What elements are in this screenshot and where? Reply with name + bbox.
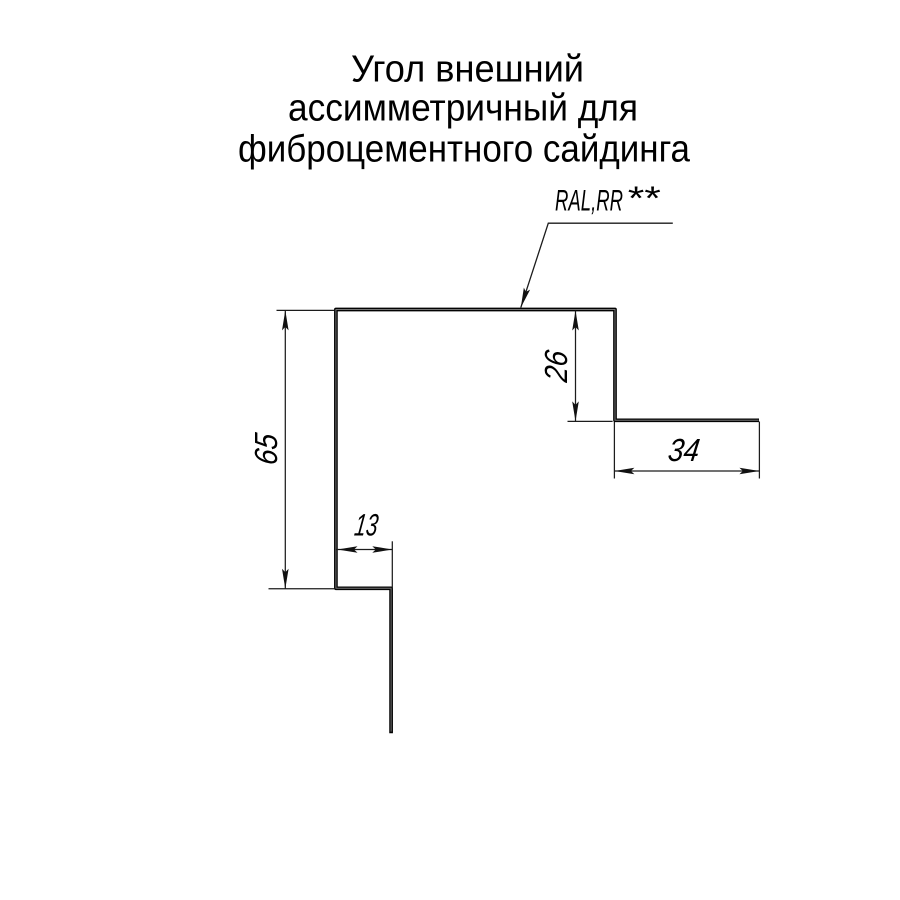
svg-text:34: 34 — [666, 432, 702, 468]
svg-text:26: 26 — [538, 348, 574, 385]
svg-text:фиброцементного сайдинга: фиброцементного сайдинга — [238, 129, 691, 171]
svg-text:**: ** — [626, 180, 660, 217]
svg-text:ассимметричный для: ассимметричный для — [288, 88, 638, 130]
svg-text:Угол внешний: Угол внешний — [351, 49, 584, 91]
svg-text:RAL,RR: RAL,RR — [555, 185, 623, 218]
svg-text:65: 65 — [248, 431, 284, 467]
